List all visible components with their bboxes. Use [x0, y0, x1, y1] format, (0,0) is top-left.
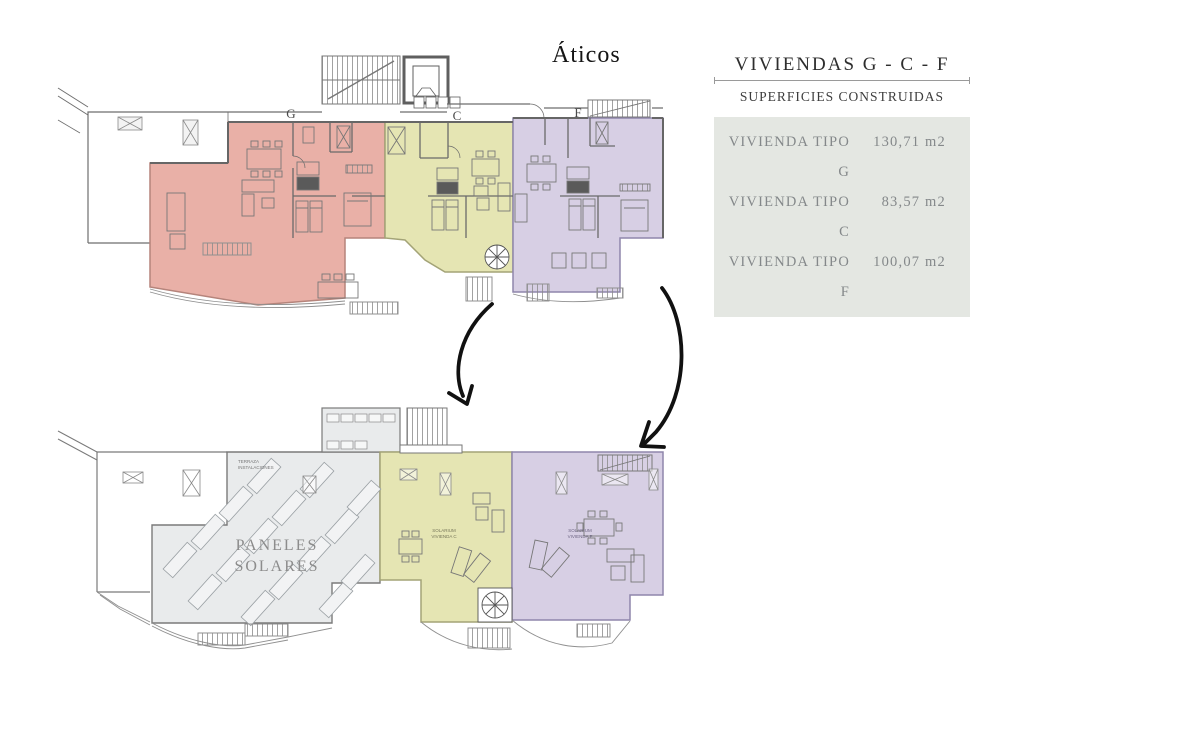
unit-g-label: G: [286, 106, 295, 121]
legend-row-value: 100,07 m2: [850, 247, 956, 307]
spiral-stair-lower: [478, 588, 512, 622]
elevator: [404, 57, 460, 108]
legend-rule: [714, 80, 970, 81]
level-arrows: [449, 288, 682, 447]
legend-panel: VIVIENDAS G - C - F SUPERFICIES CONSTRUI…: [714, 52, 970, 317]
paneles-label-line1: PANELES: [236, 537, 319, 554]
unit-f-label: F: [574, 105, 581, 120]
arrow-left-icon: [458, 304, 492, 396]
spiral-stair-upper: [485, 245, 509, 269]
unit-c-label: C: [453, 108, 462, 123]
legend-subtitle: SUPERFICIES CONSTRUIDAS: [714, 89, 970, 105]
legend-row-value: 83,57 m2: [850, 187, 956, 247]
lower-plan: TERRAZA INSTALACIONES PANELES SOLARES SO…: [58, 408, 663, 650]
unit-f-area: [513, 118, 663, 292]
stairwell: [322, 56, 400, 104]
legend-row-value: 130,71 m2: [850, 127, 956, 187]
upper-plan: G C F: [58, 56, 663, 314]
solarium-c-label-line2: VIVIENDA C: [431, 534, 457, 539]
exterior-stair-f: [588, 100, 650, 117]
solarium-f-label-line1: SOLARIUM: [568, 528, 592, 533]
legend-title: VIVIENDAS G - C - F: [714, 52, 970, 78]
terraza-label-line1: TERRAZA: [238, 459, 259, 464]
page-title: Áticos: [552, 42, 621, 69]
paneles-label-line2: SOLARES: [234, 558, 319, 575]
lower-terrace-vents: [123, 470, 200, 496]
roof-stair-block: [400, 408, 462, 453]
floorplan-canvas: G C F: [0, 0, 1181, 748]
terrace-vents: [118, 117, 198, 145]
legend-row-vivienda-c: VIVIENDA TIPO C 83,57 m2: [728, 187, 956, 247]
roof-stair-f: [598, 455, 652, 471]
legend-table: VIVIENDA TIPO G 130,71 m2 VIVIENDA TIPO …: [714, 117, 970, 317]
legend-row-label: VIVIENDA TIPO G: [728, 127, 850, 187]
solarium-f-label-line2: VIVIENDA F: [568, 534, 593, 539]
terraza-label-line2: INSTALACIONES: [238, 465, 274, 470]
aticos-floorplan-page: G C F: [0, 0, 1181, 748]
arrow-right-icon: [645, 288, 682, 443]
legend-row-vivienda-f: VIVIENDA TIPO F 100,07 m2: [728, 247, 956, 307]
legend-row-vivienda-g: VIVIENDA TIPO G 130,71 m2: [728, 127, 956, 187]
legend-row-label: VIVIENDA TIPO F: [728, 247, 850, 307]
solarium-c-label-line1: SOLARIUM: [432, 528, 456, 533]
legend-row-label: VIVIENDA TIPO C: [728, 187, 850, 247]
